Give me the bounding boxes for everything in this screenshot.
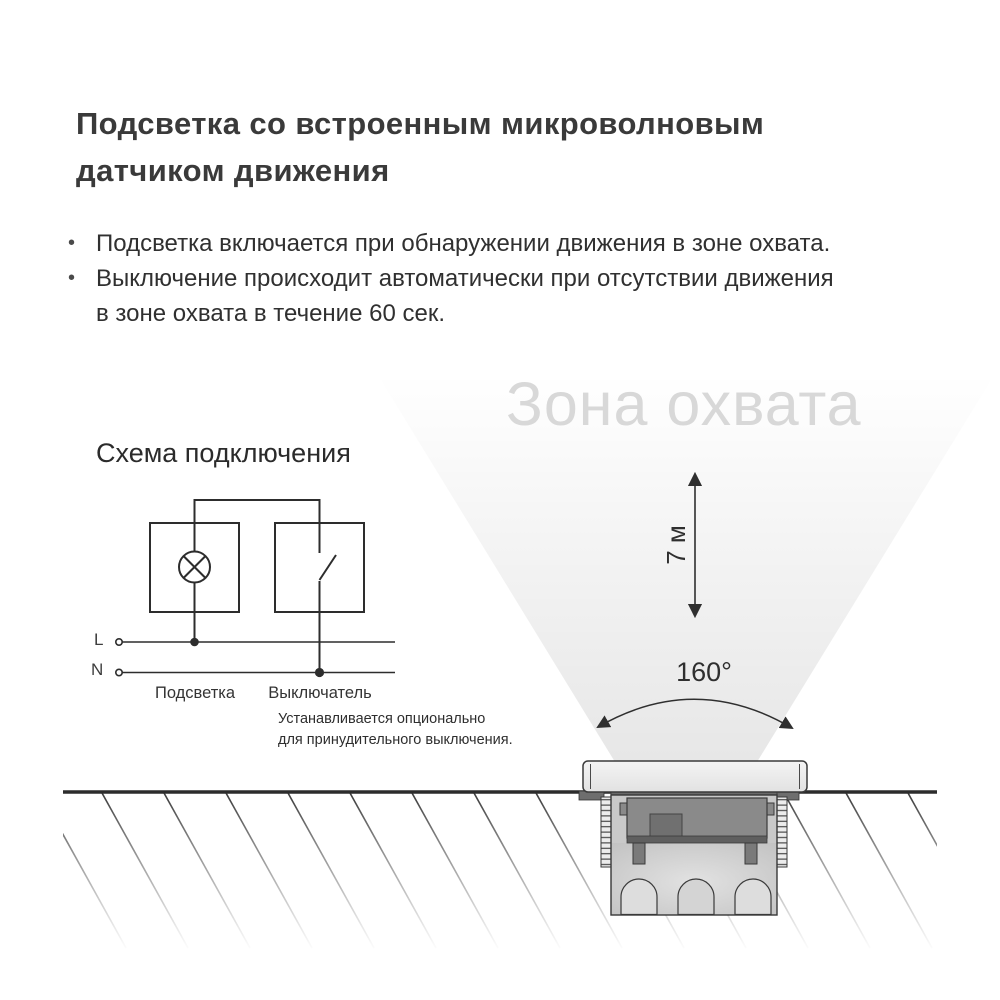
coverage-zone-watermark: Зона охвата	[506, 369, 862, 439]
housing-tab-right	[765, 803, 774, 815]
lamp-symbol	[179, 552, 210, 583]
fixture-cross-section	[579, 761, 807, 915]
fixture-thread-right	[776, 797, 787, 867]
ground-hatching	[40, 793, 994, 948]
page-title-line-2: датчиком движения	[76, 147, 764, 194]
housing-module	[650, 814, 682, 838]
lamp-box	[150, 523, 239, 612]
fixture-flange-right	[774, 791, 799, 800]
switch-label: Выключатель	[264, 684, 376, 703]
fixture-top-rim	[611, 791, 777, 799]
feature-list: • Подсветка включается при обнаружении д…	[68, 226, 834, 331]
housing-shelf	[627, 836, 767, 843]
cup-arch-center	[678, 879, 714, 915]
line-l-terminal	[116, 639, 122, 645]
junction-dot-l	[190, 638, 199, 647]
wiring-schematic	[116, 500, 395, 677]
list-item: • Подсветка включается при обнаружении д…	[68, 226, 834, 261]
fixture-cup-lower	[612, 843, 776, 914]
line-n-terminal	[116, 669, 122, 675]
cup-arch-right	[735, 879, 771, 915]
bullet-marker: •	[68, 261, 96, 296]
range-dimension-label: 7 м	[661, 509, 691, 581]
fixture-cup-body	[611, 795, 777, 915]
lamp-cross-2	[184, 556, 206, 578]
line-n-label: N	[91, 660, 103, 680]
line-l-label: L	[94, 630, 103, 650]
switch-box	[275, 523, 364, 612]
top-connector-wire	[195, 500, 320, 523]
bullet-marker: •	[68, 226, 96, 261]
housing-leg-left	[633, 843, 645, 864]
page-title-line-1: Подсветка со встроенным микроволновым	[76, 100, 764, 147]
angle-arc	[598, 699, 792, 728]
fixture-flange-left	[579, 791, 604, 800]
switch-note: Устанавливается опционально для принудит…	[278, 709, 513, 751]
fixture-housing	[627, 798, 767, 838]
fixture-bezel	[583, 761, 807, 792]
bullet-text: Подсветка включается при обнаружении дви…	[96, 226, 830, 261]
lamp-cross-1	[184, 556, 206, 578]
bullet-text: Выключение происходит автоматически при …	[96, 261, 834, 331]
page: Подсветка со встроенным микроволновым да…	[0, 0, 1000, 1000]
housing-tab-left	[620, 803, 629, 815]
cup-arch-left	[621, 879, 657, 915]
fixture-thread-left	[601, 797, 612, 867]
housing-leg-right	[745, 843, 757, 864]
switch-lever	[320, 555, 337, 580]
list-item: • Выключение происходит автоматически пр…	[68, 261, 834, 331]
angle-label: 160°	[662, 657, 746, 688]
junction-dot-n	[315, 668, 324, 677]
lamp-label: Подсветка	[148, 684, 242, 703]
wiring-diagram-title: Схема подключения	[96, 438, 351, 469]
page-title: Подсветка со встроенным микроволновым да…	[76, 100, 764, 194]
